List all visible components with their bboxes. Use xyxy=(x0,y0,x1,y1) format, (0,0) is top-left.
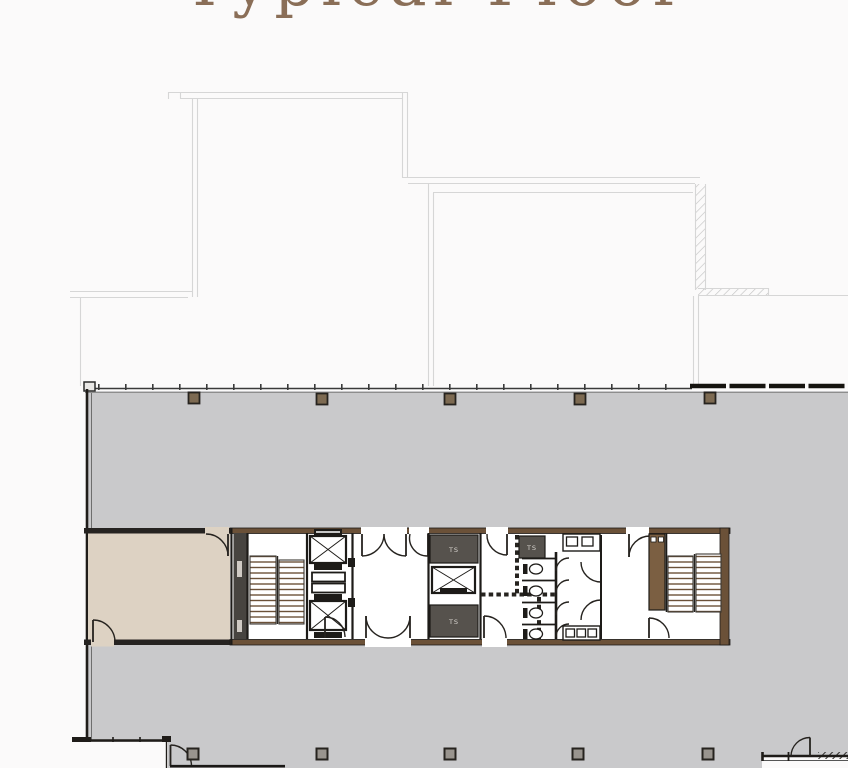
riser-shaft xyxy=(234,533,248,639)
stair-flight xyxy=(668,556,693,612)
service-room-label: TS xyxy=(448,546,459,554)
column-marker xyxy=(703,749,714,760)
column-marker xyxy=(317,749,328,760)
elevator-door xyxy=(440,588,467,594)
column-marker xyxy=(188,749,199,760)
service-room-label: TS xyxy=(448,618,459,626)
core-wall-top xyxy=(230,528,730,534)
elevator-door xyxy=(314,564,342,570)
floor-plan-canvas: Typical Floor xyxy=(0,0,848,768)
service-elevator-column: TS TS xyxy=(429,533,481,639)
floor-plan-page: Typical Floor xyxy=(0,0,848,768)
sink-counter-bottom xyxy=(563,626,600,640)
building-core: TS TS TS xyxy=(230,527,730,647)
wall-hatch-section xyxy=(818,752,848,759)
wall-flange xyxy=(348,598,355,607)
column-marker xyxy=(573,749,584,760)
service-strip-wall xyxy=(649,534,665,610)
riser-label-mark xyxy=(237,561,242,577)
stair-flight xyxy=(696,554,721,612)
column-marker xyxy=(317,394,328,405)
page-title: Typical Floor xyxy=(184,0,689,20)
tenant-room-floor xyxy=(88,531,230,642)
column-marker xyxy=(189,393,200,404)
elevator-machine xyxy=(312,584,345,593)
column-marker xyxy=(575,394,586,405)
upper-floor-outline xyxy=(70,92,848,386)
column-marker xyxy=(445,394,456,405)
stair-flight xyxy=(279,560,304,624)
service-strip xyxy=(649,534,665,610)
stair-flight xyxy=(250,556,276,624)
column-marker xyxy=(705,393,716,404)
tenant-room xyxy=(84,527,232,647)
wall-flange xyxy=(348,558,355,567)
service-room-label: TS xyxy=(526,544,537,552)
core-wall-bottom xyxy=(230,640,730,646)
upper-wall-hatch xyxy=(698,288,768,296)
column-marker xyxy=(445,749,456,760)
elevator-machine xyxy=(312,573,345,582)
sink-counter-top xyxy=(563,534,600,551)
corner-column xyxy=(84,382,95,391)
elevator-door xyxy=(314,632,342,638)
upper-wall-hatch xyxy=(695,184,706,290)
riser-label-mark xyxy=(237,620,242,632)
elevator-door xyxy=(314,594,342,600)
